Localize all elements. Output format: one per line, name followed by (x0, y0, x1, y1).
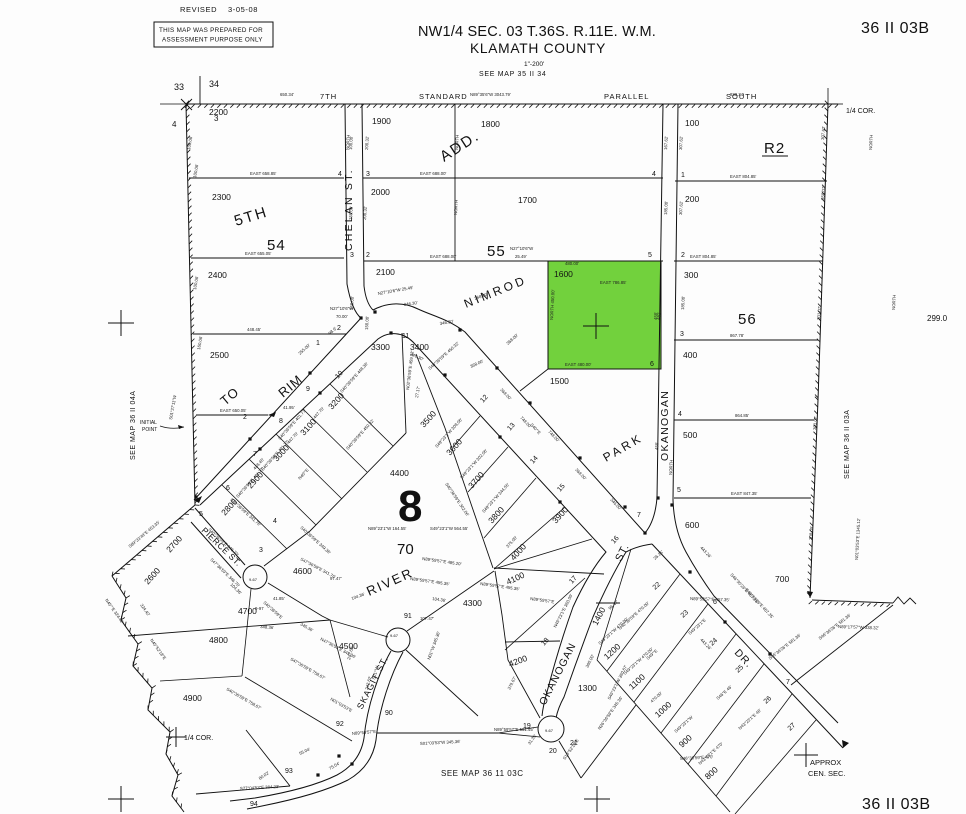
svg-text:200.32': 200.32' (362, 206, 368, 220)
svg-text:7: 7 (786, 679, 790, 686)
svg-text:70: 70 (397, 541, 414, 558)
svg-text:90: 90 (385, 710, 393, 717)
svg-text:S49°23'1"W 564.55': S49°23'1"W 564.55' (430, 526, 468, 531)
svg-text:7TH: 7TH (320, 92, 337, 101)
svg-text:ASSESSMENT PURPOSE ONLY: ASSESSMENT PURPOSE ONLY (162, 37, 263, 44)
svg-text:830.34': 830.34' (730, 92, 744, 97)
svg-text:1600: 1600 (554, 269, 573, 279)
svg-text:STANDARD: STANDARD (419, 92, 468, 101)
svg-text:NORTH: NORTH (454, 135, 460, 150)
svg-text:6: 6 (226, 485, 230, 492)
svg-text:6: 6 (650, 361, 654, 368)
svg-text:200.32': 200.32' (364, 136, 370, 150)
svg-text:THIS MAP WAS PREPARED FOR: THIS MAP WAS PREPARED FOR (159, 27, 263, 34)
svg-text:4: 4 (652, 171, 656, 178)
svg-text:4: 4 (338, 171, 342, 178)
svg-text:150.00': 150.00' (349, 296, 355, 310)
svg-text:8: 8 (398, 482, 422, 531)
svg-text:NORTH: NORTH (891, 295, 897, 310)
svg-text:185.00': 185.00' (680, 296, 686, 310)
svg-text:100: 100 (685, 118, 699, 128)
svg-text:1300: 1300 (578, 683, 597, 693)
svg-text:2: 2 (681, 252, 685, 259)
svg-text:4900: 4900 (183, 693, 202, 703)
svg-text:200: 200 (685, 194, 699, 204)
svg-text:150.00': 150.00' (348, 206, 354, 220)
svg-text:167.62': 167.62' (663, 136, 669, 150)
svg-text:480.00': 480.00' (565, 261, 579, 266)
svg-text:N27°10'6"W: N27°10'6"W (510, 246, 534, 251)
svg-text:2400: 2400 (208, 270, 227, 280)
svg-text:3: 3 (259, 547, 263, 554)
svg-text:9-97: 9-97 (255, 606, 264, 611)
svg-text:70.00': 70.00' (336, 314, 348, 319)
svg-text:11: 11 (402, 333, 409, 340)
svg-text:1500: 1500 (550, 376, 569, 386)
svg-text:4300: 4300 (463, 598, 482, 608)
svg-text:4600: 4600 (293, 566, 312, 576)
svg-text:3300: 3300 (371, 342, 390, 352)
svg-text:94: 94 (250, 801, 258, 808)
svg-text:APPROX: APPROX (810, 758, 841, 767)
svg-text:PARALLEL: PARALLEL (604, 92, 649, 101)
svg-text:REVISED: REVISED (180, 5, 217, 14)
svg-text:EAST 658.85': EAST 658.85' (250, 171, 276, 176)
svg-text:5: 5 (677, 487, 681, 494)
svg-text:307.62': 307.62' (678, 136, 684, 150)
svg-text:864.85': 864.85' (735, 413, 749, 418)
svg-text:56: 56 (738, 311, 757, 328)
svg-text:2: 2 (366, 252, 370, 259)
svg-text:1900: 1900 (372, 116, 391, 126)
svg-text:OKANOGAN: OKANOGAN (659, 390, 671, 461)
svg-text:9-67: 9-67 (249, 577, 258, 582)
svg-text:3: 3 (366, 171, 370, 178)
svg-text:1"-200': 1"-200' (524, 61, 544, 68)
svg-text:34: 34 (209, 79, 219, 89)
svg-text:600: 600 (685, 520, 699, 530)
svg-text:EAST 650.05': EAST 650.05' (220, 408, 246, 413)
svg-text:KLAMATH COUNTY: KLAMATH COUNTY (470, 41, 606, 56)
svg-text:EAST 804.85': EAST 804.85' (730, 174, 756, 179)
svg-text:3-05-08: 3-05-08 (228, 5, 258, 14)
svg-text:92: 92 (336, 721, 344, 728)
svg-text:1800: 1800 (481, 119, 500, 129)
svg-text:1: 1 (316, 340, 320, 347)
svg-text:EAST 804.85': EAST 804.85' (690, 254, 716, 259)
svg-text:4800: 4800 (209, 635, 228, 645)
svg-text:107.47': 107.47' (420, 616, 434, 621)
svg-text:3400: 3400 (410, 342, 429, 352)
svg-text:EAST 847.35': EAST 847.35' (731, 491, 757, 496)
svg-text:33: 33 (174, 82, 184, 92)
svg-text:700: 700 (775, 574, 789, 584)
svg-text:650.34': 650.34' (280, 92, 294, 97)
svg-text:307.62': 307.62' (678, 201, 684, 215)
svg-text:1/4 COR.: 1/4 COR. (846, 108, 875, 115)
svg-text:9-67: 9-67 (390, 633, 399, 638)
svg-text:EAST 688.00': EAST 688.00' (420, 171, 446, 176)
svg-text:8: 8 (279, 418, 283, 425)
svg-text:EAST 786.85': EAST 786.85' (600, 280, 626, 285)
svg-text:41.85': 41.85' (273, 596, 285, 601)
svg-text:SEE MAP 36 II 03A: SEE MAP 36 II 03A (844, 410, 851, 479)
svg-text:4400: 4400 (390, 468, 409, 478)
svg-text:300: 300 (684, 270, 698, 280)
svg-text:9-67: 9-67 (545, 728, 554, 733)
svg-text:36 II 03B: 36 II 03B (862, 796, 931, 813)
svg-text:91: 91 (404, 613, 412, 620)
svg-text:5: 5 (648, 252, 652, 259)
svg-text:4: 4 (273, 518, 277, 525)
svg-text:93: 93 (285, 768, 293, 775)
svg-text:R2: R2 (764, 140, 785, 157)
svg-text:55: 55 (487, 243, 506, 260)
svg-text:2: 2 (243, 414, 247, 421)
svg-text:41.95': 41.95' (283, 405, 295, 410)
svg-text:SEE MAP 36 II 04A: SEE MAP 36 II 04A (130, 391, 137, 460)
svg-text:2200: 2200 (209, 107, 228, 117)
svg-text:9: 9 (306, 386, 310, 393)
svg-text:POINT: POINT (142, 427, 157, 433)
svg-text:NORTH: NORTH (668, 460, 674, 475)
svg-text:NORTH: NORTH (453, 200, 459, 215)
svg-text:N89°35'6"W 3043.79': N89°35'6"W 3043.79' (470, 92, 511, 97)
svg-text:450': 450' (653, 312, 658, 320)
svg-text:2500: 2500 (210, 350, 229, 360)
svg-text:3: 3 (680, 331, 684, 338)
svg-text:2: 2 (337, 325, 341, 332)
svg-text:NORTH: NORTH (868, 135, 874, 150)
svg-text:36 II 03B: 36 II 03B (861, 20, 930, 37)
svg-text:N89°23'1"W 164.55': N89°23'1"W 164.55' (368, 526, 407, 531)
svg-text:N89°59'57"E 551.45': N89°59'57"E 551.45' (494, 727, 534, 732)
svg-text:1/4 COR.: 1/4 COR. (184, 735, 213, 742)
svg-text:185.00': 185.00' (663, 201, 669, 215)
svg-text:20: 20 (549, 748, 557, 755)
svg-text:448.45': 448.45' (247, 327, 261, 332)
svg-text:2000: 2000 (371, 187, 390, 197)
svg-text:4: 4 (172, 120, 177, 129)
svg-text:NW1/4 SEC. 03 T.36S. R.11E. W.: NW1/4 SEC. 03 T.36S. R.11E. W.M. (418, 24, 656, 40)
svg-text:450': 450' (654, 442, 659, 450)
svg-text:867.78': 867.78' (730, 333, 744, 338)
svg-text:CEN. SEC.: CEN. SEC. (808, 769, 846, 778)
svg-text:400: 400 (683, 350, 697, 360)
svg-text:1700: 1700 (518, 195, 537, 205)
svg-text:SEE MAP 35 II 34: SEE MAP 35 II 34 (479, 71, 547, 78)
svg-text:299.0: 299.0 (927, 314, 948, 323)
svg-text:4: 4 (678, 411, 682, 418)
svg-text:7: 7 (253, 451, 257, 458)
svg-text:EAST 480.00': EAST 480.00' (565, 362, 591, 367)
svg-text:2100: 2100 (376, 267, 395, 277)
svg-text:1: 1 (681, 172, 685, 179)
svg-text:2300: 2300 (212, 192, 231, 202)
svg-text:SEE MAP 36 11 03C: SEE MAP 36 11 03C (441, 769, 523, 778)
svg-text:150.00': 150.00' (364, 316, 370, 330)
svg-text:NORTH: NORTH (345, 135, 351, 150)
svg-text:500: 500 (683, 430, 697, 440)
svg-text:25.49': 25.49' (515, 254, 527, 259)
svg-text:INITIAL: INITIAL (140, 420, 157, 426)
svg-text:7: 7 (637, 512, 641, 519)
svg-text:EAST 655.05': EAST 655.05' (245, 251, 271, 256)
svg-text:3: 3 (350, 252, 354, 259)
svg-text:EAST 688.00': EAST 688.00' (430, 254, 456, 259)
svg-text:5: 5 (199, 511, 203, 518)
